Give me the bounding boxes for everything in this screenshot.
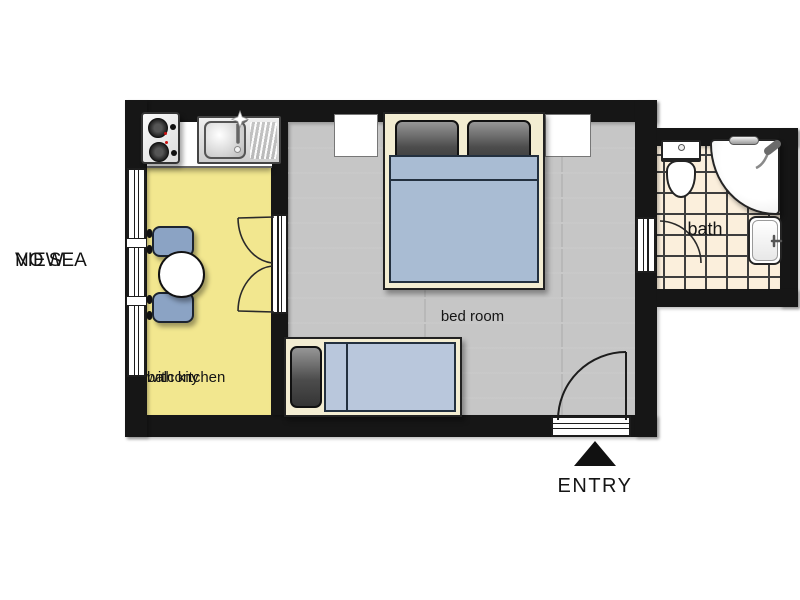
french-door-icon — [238, 217, 274, 312]
sink-drain — [234, 146, 241, 153]
no-sea-view-line2: VIEW — [15, 248, 64, 275]
kitchen-faucet-icon — [232, 111, 248, 142]
entry-door-icon — [558, 352, 626, 420]
bedroom-label: bed room — [420, 306, 525, 327]
balcony-label-line2: with kitchen — [147, 367, 225, 388]
floor-plan: NO SEA VIEW balcony with kitchen bed roo… — [0, 0, 800, 600]
entry-arrow-icon — [574, 441, 616, 466]
shower-head-icon — [756, 144, 777, 168]
door-swings-overlay — [0, 0, 800, 600]
bath-label: bath — [673, 217, 737, 242]
basin-faucet-icon — [772, 236, 781, 246]
entry-label: ENTRY — [548, 472, 642, 500]
duvet-fold — [326, 344, 348, 410]
duvet-fold — [391, 157, 537, 181]
